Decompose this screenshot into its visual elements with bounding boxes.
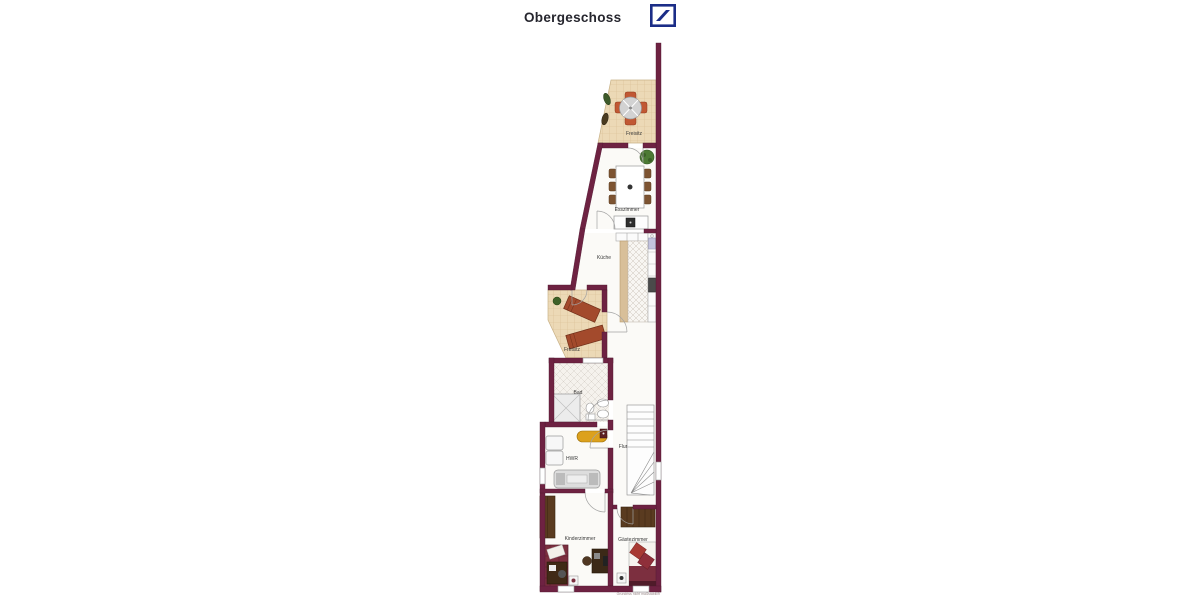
dining-set bbox=[609, 166, 651, 208]
guest-bed bbox=[629, 542, 656, 586]
sink bbox=[598, 410, 609, 418]
dining-chair bbox=[609, 169, 616, 178]
label-bad: Bad bbox=[574, 390, 583, 396]
label-gaestezimmer: Gästezimmer bbox=[618, 537, 648, 543]
kitchen-oven bbox=[649, 278, 656, 292]
dining-chair bbox=[644, 195, 651, 204]
window bbox=[656, 462, 661, 480]
window bbox=[558, 586, 574, 592]
label-flur: Flur bbox=[619, 444, 628, 450]
label-kueche: Küche bbox=[597, 255, 611, 261]
staircase bbox=[627, 405, 654, 495]
kitchen-sink bbox=[649, 238, 656, 249]
bench bbox=[554, 470, 600, 488]
washing-machine bbox=[546, 436, 563, 450]
label-esszimmer: Esszimmer bbox=[615, 207, 640, 213]
window bbox=[583, 358, 603, 363]
label-hwr: HWR bbox=[566, 456, 578, 462]
label-freisitz-lower: Freisitz bbox=[564, 347, 581, 353]
kitchen-counter bbox=[620, 241, 628, 322]
kitchen-tile-area bbox=[628, 241, 648, 322]
floorplan: Freisitz Esszimmer Küche Freisitz Bad HW… bbox=[0, 0, 1200, 600]
dining-chair bbox=[609, 195, 616, 204]
window bbox=[540, 468, 545, 484]
plant-terrace bbox=[553, 297, 561, 305]
wardrobe bbox=[621, 507, 655, 527]
dining-chair bbox=[644, 169, 651, 178]
label-kinderzimmer: Kinderzimmer bbox=[565, 536, 596, 542]
scale-footnote: Grundriss nicht maßstäblich bbox=[617, 592, 660, 596]
dining-chair bbox=[609, 182, 616, 191]
desk bbox=[547, 562, 567, 584]
sideboard-hob bbox=[614, 216, 648, 229]
label-freisitz-top: Freisitz bbox=[626, 131, 643, 137]
dining-chair bbox=[644, 182, 651, 191]
kitchen-fixtures bbox=[616, 233, 656, 322]
dryer bbox=[546, 451, 563, 465]
